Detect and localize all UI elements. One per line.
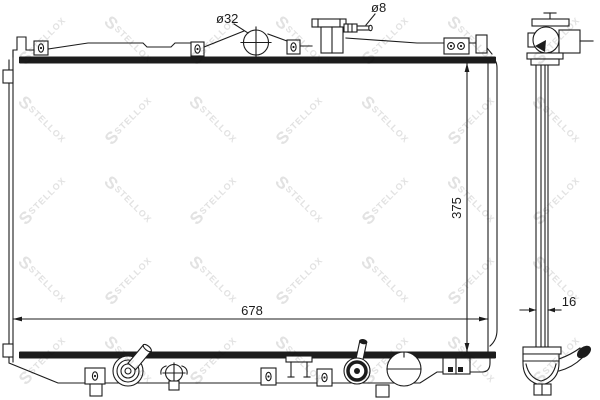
core-bottom-edge bbox=[20, 352, 495, 358]
inlet-pipe bbox=[113, 343, 153, 386]
mounting-bracket-top-1 bbox=[34, 41, 48, 55]
dim-depth-arrow-left bbox=[529, 308, 536, 313]
dim-overflow-tube-diameter-label: ø8 bbox=[371, 0, 386, 15]
mounting-bracket-top-3 bbox=[287, 40, 300, 54]
side-view-filler bbox=[527, 27, 593, 65]
side-outlet-pipe bbox=[559, 348, 580, 359]
top-right-post bbox=[476, 35, 487, 53]
right-side-tank bbox=[488, 58, 497, 352]
dim-depth-arrow-right bbox=[548, 308, 555, 313]
fan-opening bbox=[376, 352, 421, 397]
dim-height-arrow-top bbox=[465, 63, 470, 72]
dim-width-arrow-left bbox=[13, 317, 22, 322]
radiator-cap bbox=[312, 19, 346, 53]
core-top-edge bbox=[20, 57, 495, 63]
dim-core-height-label: 375 bbox=[449, 197, 464, 219]
bridge-bracket bbox=[286, 356, 312, 377]
mounting-bracket-bottom-2 bbox=[261, 368, 276, 385]
dimension-lines bbox=[13, 14, 561, 352]
drawing-canvas: 678 375 16 ø32 ø8 SSTELLOXSSTELLOXSSTELL… bbox=[0, 0, 600, 400]
radiator-technical-drawing: 678 375 16 ø32 ø8 bbox=[0, 0, 600, 400]
side-view bbox=[523, 13, 593, 395]
front-view bbox=[3, 19, 497, 397]
side-view-core bbox=[536, 66, 548, 347]
dim-filler-neck-diameter-label: ø32 bbox=[216, 11, 238, 26]
side-view-cap bbox=[532, 13, 569, 26]
dim-width-arrow-right bbox=[479, 317, 488, 322]
side-view-bottom-tank bbox=[523, 343, 593, 395]
overflow-tube bbox=[344, 24, 372, 32]
outlet-pipe bbox=[344, 339, 370, 384]
mounting-bracket-bottom-4 bbox=[443, 358, 470, 374]
mounting-bracket-bottom-3 bbox=[317, 369, 332, 386]
dim-overall-width-label: 678 bbox=[241, 303, 263, 318]
dim-core-depth-label: 16 bbox=[562, 294, 576, 309]
leader-overflow-diameter bbox=[366, 14, 375, 25]
drain-plug bbox=[161, 363, 187, 390]
mounting-bracket-top-4 bbox=[444, 38, 469, 54]
left-side-plate bbox=[3, 50, 13, 362]
dim-height-arrow-bottom bbox=[465, 343, 470, 352]
mounting-bracket-bottom-1 bbox=[85, 368, 105, 396]
mounting-bracket-top-2 bbox=[191, 42, 204, 56]
